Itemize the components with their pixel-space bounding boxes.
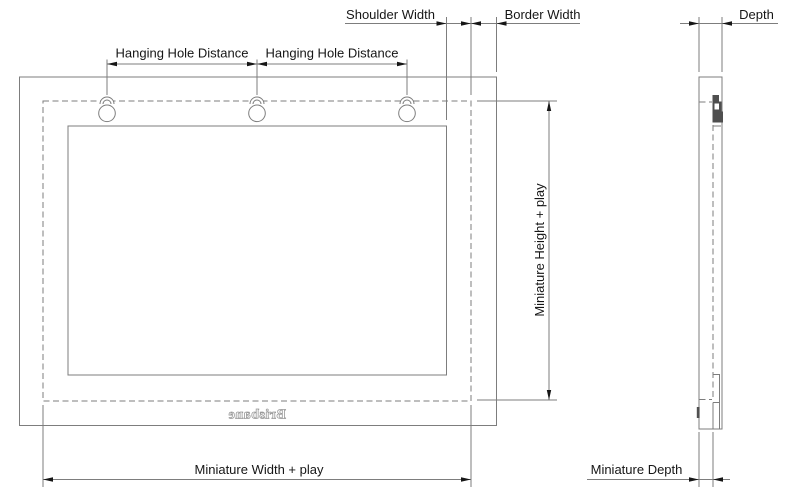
dim-label-miniature-depth: Miniature Depth (591, 462, 683, 477)
dim-label-hanging-hole-right: Hanging Hole Distance (266, 46, 399, 61)
arrowhead (547, 101, 551, 111)
arrowhead (689, 21, 699, 25)
arrowhead (461, 477, 471, 481)
arrowhead (43, 477, 53, 481)
arrowhead (547, 390, 551, 400)
arrowhead (689, 477, 699, 481)
dim-depth: Depth (680, 7, 778, 72)
dim-hanging-hole-distance: Hanging Hole Distance Hanging Hole Dista… (107, 46, 407, 96)
dim-label-border-width: Border Width (505, 7, 581, 22)
frame-dimension-diagram: Brisbane Hanging Hole Distance Hanging H… (0, 0, 800, 501)
frame-outer-edge (20, 77, 497, 426)
dim-label-miniature-height: Miniature Height + play (532, 183, 547, 317)
front-view: Brisbane (20, 77, 497, 426)
keyhole-icon (399, 97, 416, 122)
dim-label-depth: Depth (739, 7, 774, 22)
arrowhead (247, 62, 257, 66)
keyhole-side-profile (713, 95, 724, 126)
brand-text-mirrored: Brisbane (228, 408, 286, 423)
dim-miniature-depth: Miniature Depth (587, 432, 730, 487)
side-outer-edge (699, 77, 722, 429)
arrowhead (107, 62, 117, 66)
arrowhead (471, 21, 481, 25)
arrowhead (461, 21, 471, 25)
dim-miniature-height: Miniature Height + play (477, 101, 557, 400)
arrowhead (437, 21, 447, 25)
arrowhead (257, 62, 267, 66)
dim-label-miniature-width: Miniature Width + play (195, 462, 324, 477)
dim-label-hanging-hole-left: Hanging Hole Distance (116, 46, 249, 61)
keyhole-icon (99, 97, 116, 122)
side-view (697, 77, 723, 429)
arrowhead (713, 477, 723, 481)
brand-edge-mark (697, 407, 700, 418)
frame-opening (68, 126, 447, 375)
frame-hidden-back-edge (43, 101, 471, 401)
keyhole-icon (249, 97, 266, 122)
dim-label-shoulder-width: Shoulder Width (346, 7, 435, 22)
arrowhead (397, 62, 407, 66)
arrowhead (722, 21, 732, 25)
side-bottom-step (713, 375, 720, 430)
technical-drawing: Brisbane Hanging Hole Distance Hanging H… (0, 0, 800, 501)
